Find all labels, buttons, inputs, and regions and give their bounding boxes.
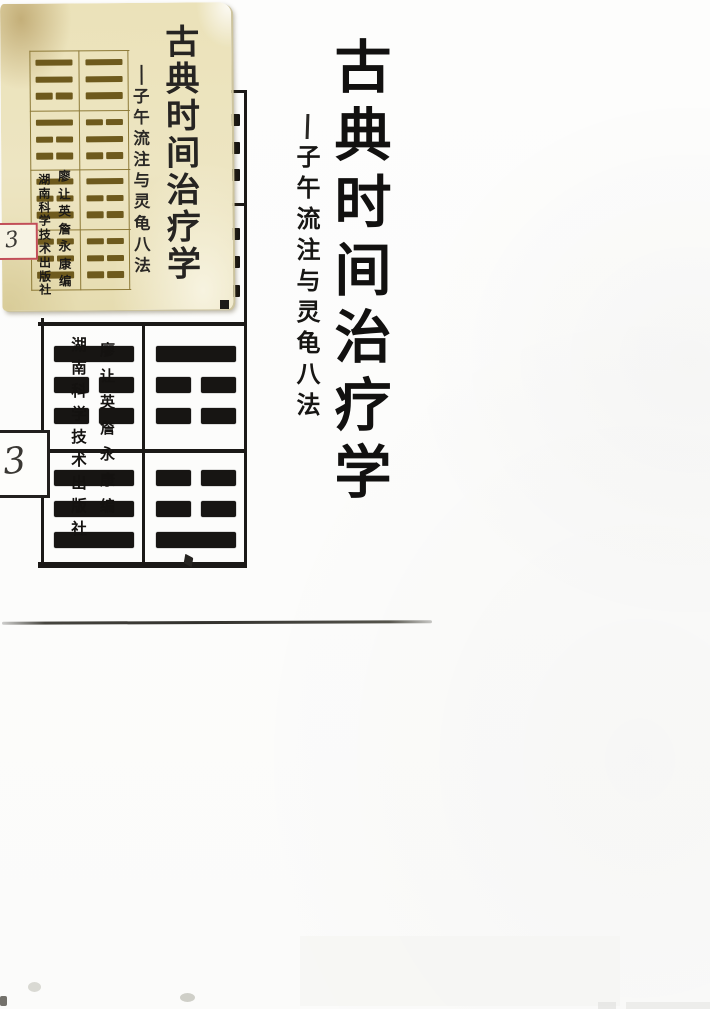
under-trigram-cell	[54, 470, 134, 570]
book-cover-card: 古典时间治疗学 子午流注与灵龟八法 湖南科学技术出版社 廖让英詹永康编 3	[0, 2, 233, 311]
red-catalog-label: 3	[0, 223, 38, 260]
under-grid-row-divider-1	[231, 203, 247, 206]
card-title: 古典时间治疗学	[160, 26, 206, 282]
under-trigram-cell	[156, 346, 236, 446]
under-trigram-cell	[156, 470, 236, 570]
scan-ghost-block	[300, 936, 620, 1006]
card-trigram-cell	[87, 238, 124, 288]
card-subtitle-dash	[140, 65, 143, 85]
card-trigram-cell	[86, 119, 123, 169]
card-publisher-text: 湖南科学技术出版社	[37, 174, 52, 296]
main-title: 古典时间治疗学	[334, 40, 392, 502]
scanned-book-cover-page: 湖南科学技术出版社 廖让英詹永康编 3 古典时间治疗学 子午流注与灵龟八法 湖南…	[0, 0, 710, 1009]
under-editors-text: 廖让英詹永康编	[99, 344, 116, 515]
under-grid-column-divider	[142, 326, 145, 568]
ink-tick-at-card-edge	[220, 300, 229, 309]
card-subtitle: 子午流注与灵龟八法	[132, 89, 152, 274]
handwritten-number: 3	[1, 440, 28, 483]
scan-speck	[0, 996, 7, 1006]
card-trigram-cell	[85, 59, 122, 109]
scan-smudge	[180, 993, 195, 1002]
scan-edge-strip	[626, 1002, 710, 1009]
under-publisher-text: 湖南科学技术出版社	[70, 338, 88, 538]
under-grid-right-border	[244, 92, 247, 568]
catalog-label-box: 3	[0, 430, 50, 498]
main-subtitle: 子午流注与灵龟八法	[295, 146, 322, 418]
card-trigram-cell	[35, 59, 72, 109]
horizontal-rule	[2, 620, 432, 625]
scan-edge-strip	[598, 1002, 616, 1009]
under-trigram-cell	[54, 346, 134, 446]
card-editors-text: 廖让英詹永康编	[57, 170, 72, 288]
handwritten-number: 3	[3, 227, 20, 253]
main-subtitle-dash	[306, 114, 310, 139]
scan-smudge	[28, 982, 41, 992]
card-trigram-cell	[86, 178, 123, 228]
card-trigram-cell	[36, 119, 73, 169]
